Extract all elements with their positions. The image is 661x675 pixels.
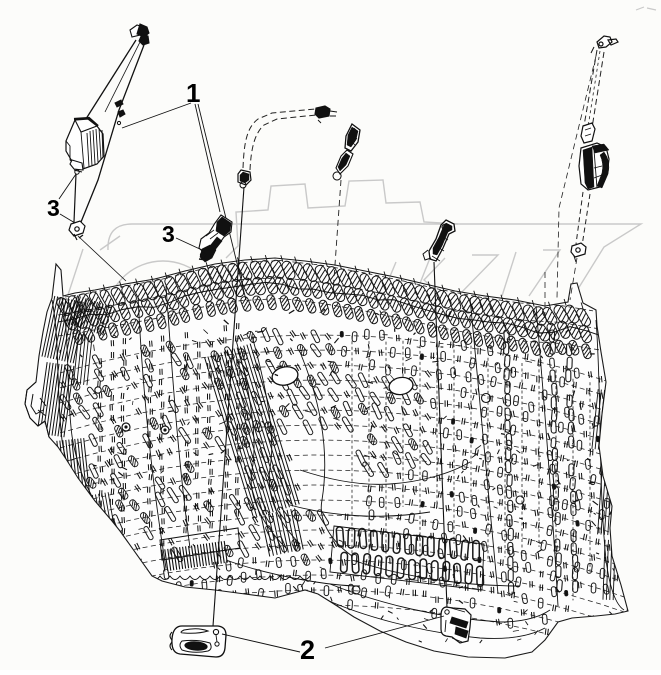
svg-text:3: 3 <box>162 221 175 247</box>
svg-text:2: 2 <box>300 635 315 665</box>
svg-text:1: 1 <box>186 78 200 108</box>
svg-text:3: 3 <box>47 195 60 221</box>
